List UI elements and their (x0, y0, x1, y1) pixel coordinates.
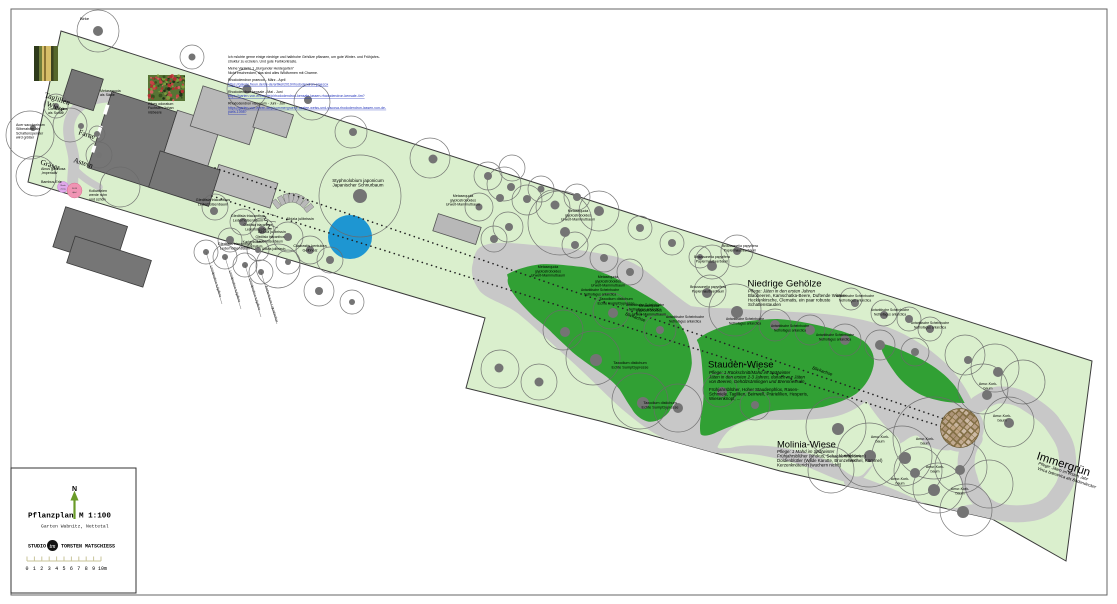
svg-text:Nothofagus antarctica: Nothofagus antarctica (774, 328, 806, 332)
svg-text:von Beeren, Gehölzsämlingen un: von Beeren, Gehölzsämlingen und Brennnes… (709, 379, 805, 384)
svg-text:Nothofagus antarctica: Nothofagus antarctica (914, 325, 946, 329)
svg-text:3: 3 (48, 566, 51, 572)
svg-text:Stauden-Wiese: Stauden-Wiese (708, 360, 774, 371)
svg-text:Nicht erschrecken, das sind al: Nicht erschrecken, das sind alles Wildfo… (228, 71, 318, 75)
svg-text:baum: baum (998, 418, 1007, 422)
svg-text:baum: baum (984, 386, 993, 390)
svg-text:Rhododendron viscosum - Juni -: Rhododendron viscosum - Juni - Juli (228, 101, 285, 105)
svg-text:struktur zu erzielen. Und gute: struktur zu erzielen. Und gute Farbkontr… (228, 59, 297, 63)
svg-text:tm: tm (50, 544, 57, 550)
svg-text:Nothofagus antarctica: Nothofagus antarctica (584, 292, 616, 296)
svg-text:Papiermaulbeerbaum: Papiermaulbeerbaum (696, 259, 729, 263)
svg-text:2: 2 (40, 566, 43, 572)
svg-text:und schön: und schön (89, 197, 106, 201)
svg-text:Nothofagus antarctica: Nothofagus antarctica (819, 337, 851, 341)
svg-text:Schattenstauden: Schattenstauden (748, 302, 782, 307)
svg-text:baum: baum (921, 441, 930, 445)
svg-text:Zwerg: Zwerg (61, 189, 66, 191)
svg-text:Urwelt-Mammutbaum: Urwelt-Mammutbaum (446, 203, 480, 207)
svg-text:‚Imperialis‘: ‚Imperialis‘ (41, 171, 58, 175)
svg-text:Molinia-Wiese: Molinia-Wiese (777, 439, 836, 450)
svg-text:baum: baum (876, 439, 885, 443)
svg-text:baum: baum (931, 469, 940, 473)
svg-text:https;//garten-von-ehren.de/p/: https;//garten-von-ehren.de/p/rhododendr… (228, 94, 365, 98)
svg-text:Albizia julibrissin: Albizia julibrissin (286, 217, 314, 221)
svg-text:Apfel: Apfel (72, 191, 77, 194)
svg-text:M 1:100: M 1:100 (79, 513, 111, 521)
svg-text:paris-1098?: paris-1098? (228, 110, 247, 114)
svg-text:Echte Sumpfzypresse: Echte Sumpfzypresse (642, 405, 679, 409)
svg-text:Nothofagus antarctica: Nothofagus antarctica (629, 307, 661, 311)
svg-text:0: 0 (25, 566, 28, 572)
svg-text:Papiermaulbeerbaum: Papiermaulbeerbaum (724, 248, 757, 252)
svg-text:https;//garten-von-ehren.de/p/: https;//garten-von-ehren.de/p/sommergrue… (228, 106, 387, 110)
svg-text:baum: baum (849, 458, 858, 462)
svg-text:Papiermaulbeerbaum: Papiermaulbeerbaum (692, 289, 725, 293)
svg-text:Echte Sumpfzypresse: Echte Sumpfzypresse (612, 365, 649, 369)
svg-text:STUDIO: STUDIO (28, 544, 46, 550)
svg-text:RH 38: RH 38 (72, 188, 77, 190)
svg-text:Birke: Birke (80, 16, 90, 21)
svg-text:Gelbholz: Gelbholz (303, 248, 318, 252)
svg-text:https;//galerie.freun.de/de-de: https;//galerie.freun.de/de-de/artikel/2… (228, 83, 328, 87)
svg-text:baum: baum (956, 491, 965, 495)
svg-text:m: m (104, 566, 107, 572)
svg-text:Rhodo: Rhodo (60, 185, 65, 187)
svg-text:Rhododendron praecox - März -: Rhododendron praecox - März - April (228, 78, 286, 82)
svg-text:9: 9 (92, 566, 95, 572)
svg-text:als Solitär: als Solitär (48, 111, 65, 115)
svg-text:TORSTEN MATSCHIESS: TORSTEN MATSCHIESS (61, 544, 115, 550)
svg-text:Urwelt-Mammutbaum: Urwelt-Mammutbaum (561, 218, 595, 222)
svg-text:Lederhülsenbaum: Lederhülsenbaum (245, 227, 271, 231)
svg-text:4: 4 (55, 566, 58, 572)
svg-text:Ich möchte gerne einige niedri: Ich möchte gerne einige niedrige und hal… (228, 55, 381, 59)
svg-text:Nothofagus antarctica: Nothofagus antarctica (669, 319, 701, 323)
svg-text:Urwelt-Mammutbaum: Urwelt-Mammutbaum (591, 284, 625, 288)
svg-text:Nothofagus antarctica: Nothofagus antarctica (874, 312, 906, 316)
svg-text:wird größer: wird größer (16, 136, 35, 140)
svg-text:als Säule: als Säule (100, 93, 115, 97)
svg-text:Urwelt-Mammutbaum: Urwelt-Mammutbaum (632, 313, 666, 317)
svg-text:Lederhülsenbaum: Lederhülsenbaum (198, 202, 228, 206)
svg-text:Bambus-Erle: Bambus-Erle (41, 180, 62, 184)
svg-text:Lederhülsenbaum: Lederhülsenbaum (233, 218, 263, 222)
svg-text:7: 7 (77, 566, 80, 572)
svg-text:Meine Variante 1 „Burgunder He: Meine Variante 1 „Burgunder Heidegarten“ (228, 67, 295, 71)
svg-text:1: 1 (33, 566, 36, 572)
svg-text:Nothofagus antarctica: Nothofagus antarctica (839, 298, 871, 302)
svg-text:Pflanzplan: Pflanzplan (28, 513, 74, 521)
svg-text:nisbeere: nisbeere (148, 110, 162, 114)
svg-text:Japanischer Schnurbaum: Japanischer Schnurbaum (332, 182, 383, 187)
svg-text:5: 5 (62, 566, 65, 572)
svg-text:Kerzenknöterich (wuchern nicht: Kerzenknöterich (wuchern nicht!) (777, 463, 842, 468)
svg-text:8: 8 (85, 566, 88, 572)
svg-text:Albizia julibrissin: Albizia julibrissin (262, 247, 286, 251)
svg-text:baum: baum (896, 481, 905, 485)
svg-text:Cercidiphyllum: Cercidiphyllum (242, 244, 263, 248)
svg-text:6: 6 (70, 566, 73, 572)
svg-text:Urwelt-Mammutbaum: Urwelt-Mammutbaum (531, 274, 565, 278)
svg-text:Garten Wabnitz, Nettetal: Garten Wabnitz, Nettetal (41, 524, 109, 530)
svg-text:Wiesenknopf, ...: Wiesenknopf, ... (709, 396, 740, 401)
svg-text:Rhododendron kensale - Mai - J: Rhododendron kensale - Mai - Juni (228, 90, 283, 94)
svg-text:Nothofagus antarctica: Nothofagus antarctica (729, 321, 761, 325)
